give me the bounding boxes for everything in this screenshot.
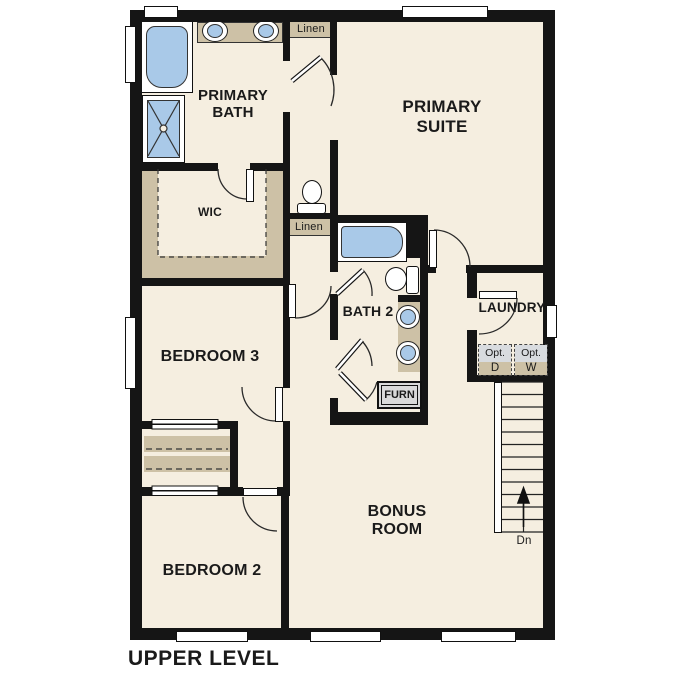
floor-plan-canvas: Opt. D Opt. W FURN PRIMARY BATH PRIMARY … [0,0,687,687]
wall [230,421,238,495]
wall [330,412,428,425]
primary-toilet-bowl [302,180,322,204]
wall [337,215,428,223]
primary-bathtub [146,26,188,88]
plan-title: UPPER LEVEL [128,647,348,671]
closet-label-linen-top: Linen [285,23,337,35]
wall [142,421,154,429]
wall [277,487,290,496]
wall [288,213,332,219]
wic-shelf-bottom [142,256,285,278]
window [310,631,381,642]
window [144,6,178,18]
wall [283,112,290,278]
room-label-primary-bath: PRIMARY BATH [191,87,275,121]
wall [467,375,555,382]
bath2-bathtub [341,226,403,258]
optional-washer-opt-label: Opt. [515,345,547,362]
wall-top [130,10,555,22]
optional-dryer-opt-label: Opt. [479,345,511,362]
window [402,6,488,18]
wall [330,294,338,340]
primary-suite-door-panel [429,230,437,268]
closet-label-linen-mid: Linen [288,221,330,233]
wall [216,487,243,496]
bath2-toilet-bowl [385,267,407,291]
window [125,26,136,83]
room-label-bonus-room: BONUS ROOM [346,503,448,539]
stairs-dn-label: Dn [510,535,538,547]
wall [466,265,543,273]
linen2-door-panel [288,284,296,318]
wic-door-panel [246,169,254,202]
room-label-wic: WIC [189,205,231,219]
bedroom2-door-panel [243,488,278,496]
window [125,317,136,389]
primary-sink-left-basin [207,24,223,38]
bath2-sink-bottom-basin [400,345,416,361]
room-label-primary-suite: PRIMARY SUITE [386,97,498,137]
optional-washer-letter: W [515,362,547,376]
bath2-sink-top-basin [400,309,416,325]
wall [330,140,338,272]
closet-shelf-2 [144,456,230,472]
optional-dryer-letter: D [479,362,511,376]
furnace-label: FURN [381,385,418,405]
bath2-toilet-tank [406,266,419,294]
room-label-bedroom3: BEDROOM 3 [145,348,275,366]
optional-dryer-box: Opt. D [478,344,512,376]
bedroom3-door-panel [275,387,283,422]
wall [281,495,289,628]
wall [283,421,290,495]
wall [398,295,428,302]
wic-shelf-right [266,166,283,278]
window [176,631,248,642]
laundry-door-panel [479,291,517,299]
wall [467,273,477,298]
wall [142,163,218,171]
closet-shelf-1 [144,436,230,452]
wall [142,278,290,286]
shower-pan [147,100,180,158]
room-label-bedroom2: BEDROOM 2 [147,562,277,580]
optional-washer-box: Opt. W [514,344,548,376]
primary-sink-right-basin [258,24,274,38]
furnace-box: FURN [377,381,422,409]
room-label-laundry: LAUNDRY [474,300,550,315]
wall [142,487,154,496]
room-label-bath2: BATH 2 [340,303,396,319]
window [441,631,516,642]
stair-rail [494,382,502,533]
